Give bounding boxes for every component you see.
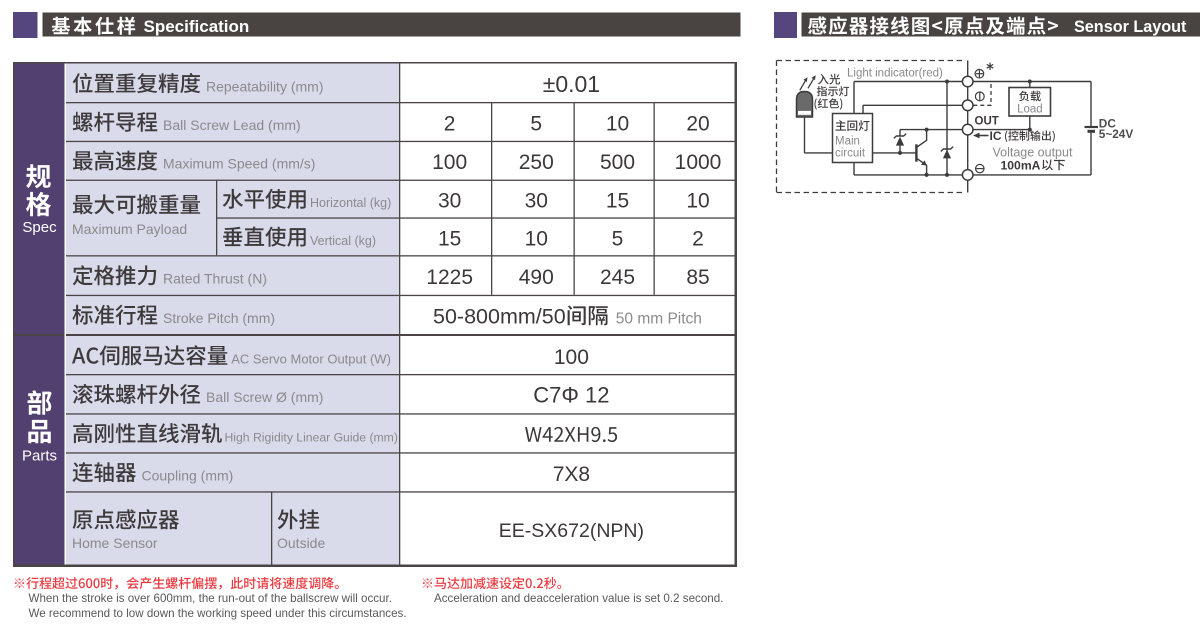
- svg-text:Ball Screw Lead (mm): Ball Screw Lead (mm): [163, 117, 301, 133]
- svg-text:High Rigidity Linear Guide (mm: High Rigidity Linear Guide (mm): [225, 430, 398, 444]
- svg-text:We recommend to low down the w: We recommend to low down the working spe…: [29, 607, 407, 620]
- svg-text:10: 10: [525, 227, 548, 250]
- svg-text:Sensor Layout: Sensor Layout: [1074, 18, 1187, 36]
- svg-text:OUT: OUT: [975, 115, 999, 127]
- svg-text:85: 85: [686, 266, 709, 289]
- svg-text:100: 100: [554, 346, 589, 369]
- svg-text:50 mm Pitch: 50 mm Pitch: [616, 310, 702, 327]
- svg-text:2: 2: [444, 112, 456, 135]
- svg-text:490: 490: [519, 266, 554, 289]
- svg-text:Maximum Payload: Maximum Payload: [72, 221, 187, 237]
- svg-text:AC Servo Motor Output (W): AC Servo Motor Output (W): [231, 352, 391, 367]
- svg-text:Main: Main: [835, 136, 860, 148]
- svg-text:Stroke Pitch (mm): Stroke Pitch (mm): [163, 310, 275, 326]
- svg-text:Horizontal (kg): Horizontal (kg): [310, 196, 391, 210]
- svg-text:5: 5: [612, 227, 624, 250]
- svg-text:500: 500: [600, 151, 635, 174]
- svg-text:5: 5: [530, 112, 542, 135]
- svg-text:30: 30: [438, 190, 461, 213]
- svg-text:10: 10: [686, 190, 709, 213]
- svg-text:Maximum Speed (mm/s): Maximum Speed (mm/s): [163, 156, 315, 172]
- svg-text:20: 20: [686, 112, 709, 135]
- svg-text:IC: IC: [990, 129, 1002, 143]
- svg-text:10: 10: [606, 112, 629, 135]
- svg-text:2: 2: [692, 227, 704, 250]
- svg-text:Repeatability (mm): Repeatability (mm): [206, 78, 323, 94]
- svg-text:245: 245: [600, 266, 635, 289]
- svg-text:Acceleration and deacceleratio: Acceleration and deacceleration value is…: [434, 592, 723, 605]
- svg-text:C7Φ 12: C7Φ 12: [533, 383, 609, 408]
- svg-text:50-800mm/50: 50-800mm/50: [433, 304, 566, 328]
- svg-text:Spec: Spec: [22, 219, 57, 236]
- svg-text:Parts: Parts: [22, 448, 57, 465]
- svg-text:Load: Load: [1017, 103, 1043, 115]
- svg-text:Specification: Specification: [144, 17, 250, 36]
- svg-text:1225: 1225: [426, 266, 473, 289]
- svg-text:EE-SX672(NPN): EE-SX672(NPN): [499, 520, 644, 542]
- svg-text:Light indicator(red): Light indicator(red): [847, 68, 943, 80]
- svg-text:100mA: 100mA: [1001, 158, 1041, 172]
- svg-text:Rated Thrust (N): Rated Thrust (N): [163, 271, 267, 287]
- svg-text:Vertical (kg): Vertical (kg): [310, 234, 376, 248]
- svg-text:Coupling (mm): Coupling (mm): [142, 467, 234, 483]
- svg-text:15: 15: [438, 227, 461, 250]
- svg-text:Outside: Outside: [277, 535, 325, 551]
- svg-text:When the stroke is over 600mm,: When the stroke is over 600mm, the run-o…: [29, 592, 392, 605]
- svg-text:7X8: 7X8: [553, 463, 590, 486]
- svg-text:Ball Screw Ø (mm): Ball Screw Ø (mm): [206, 389, 323, 405]
- svg-text:30: 30: [525, 190, 548, 213]
- svg-text:250: 250: [519, 151, 554, 174]
- svg-text:100: 100: [432, 151, 467, 174]
- svg-text:±0.01: ±0.01: [543, 71, 600, 97]
- svg-text:Home Sensor: Home Sensor: [72, 535, 158, 551]
- svg-text:circuit: circuit: [835, 148, 866, 160]
- svg-text:15: 15: [606, 190, 629, 213]
- svg-text:1000: 1000: [675, 151, 722, 174]
- svg-text:5~24V: 5~24V: [1099, 127, 1134, 141]
